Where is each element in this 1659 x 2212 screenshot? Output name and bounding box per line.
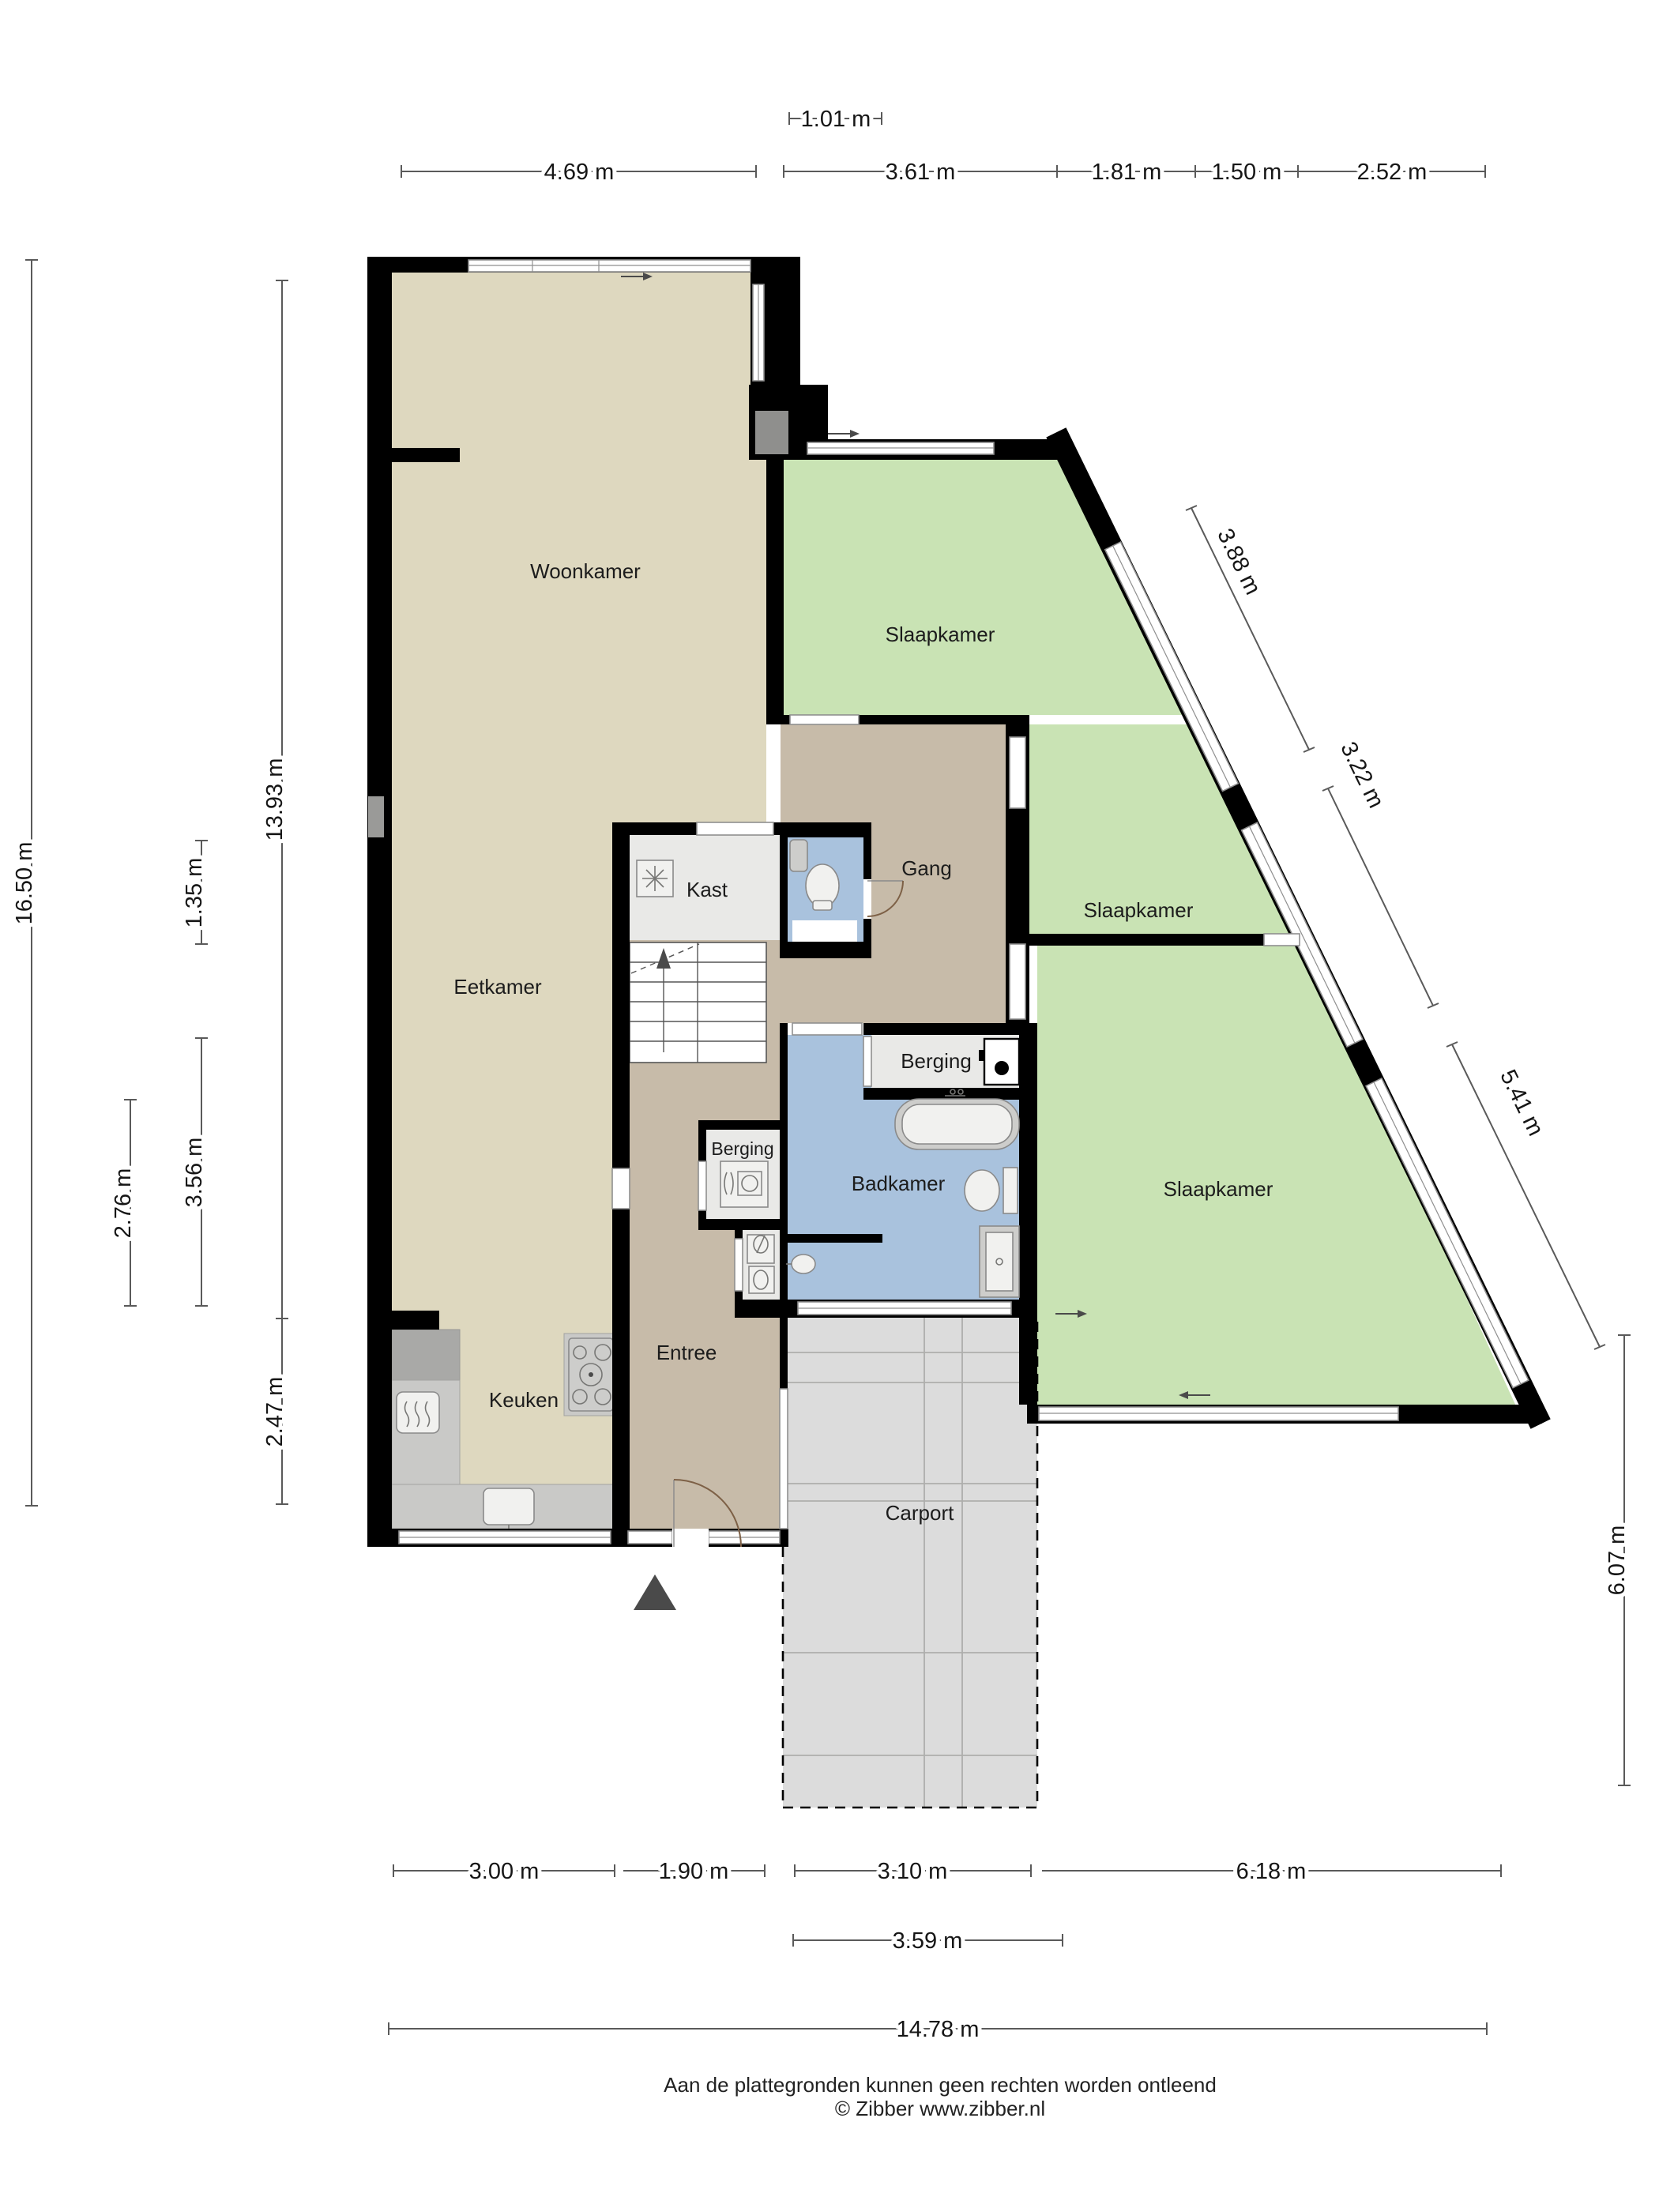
room-label-gang: Gang [901,856,952,880]
room-label-entree: Entree [656,1341,717,1364]
stairs [630,942,766,1063]
room-label-woonkamer: Woonkamer [530,559,641,583]
door-toilet [863,879,871,919]
dim-bottom-carport: 3.59 m [793,1928,1063,1954]
wall-woonkamer-slaapkamer [766,457,784,724]
door-meter-closet [735,1239,743,1291]
toilet2-icon [965,1168,1018,1213]
door-keuken [612,1168,630,1209]
floorplan-canvas: Woonkamer Eetkamer Keuken Entree Kast Ga… [0,0,1659,2212]
dim-bottom-total: 14.78 m [389,2017,1487,2042]
dim-top-row: 4.69 m 3.61 m 1.81 m 1.50 m 2.52 m [401,160,1485,185]
fridge-icon [392,1330,460,1380]
wall-toilet-bottom [788,942,871,958]
door-tussen-slaapkamers [1264,934,1300,946]
door-berging-gang [863,1036,871,1086]
wall-stub-woonkamer [392,448,460,462]
floor-slaapkamer-onder [1037,946,1517,1408]
shower-icon [980,1226,1019,1297]
svg-text:3.59 m: 3.59 m [893,1928,963,1954]
wall-berging-bottom [863,1088,1037,1100]
dim-bottom-row: 3.00 m 1.90 m 3.10 m 6.18 m [393,1859,1501,1884]
wall-stub-keuken [392,1311,439,1330]
svg-text:13.93 m: 13.93 m [262,758,288,841]
svg-text:1.35 m: 1.35 m [182,858,207,928]
oven-icon [397,1392,439,1433]
chimney-inset [755,411,788,454]
door-voordeur-opening [672,1529,709,1547]
svg-text:1.90 m: 1.90 m [659,1859,729,1884]
door-slaapkamer-onder [1010,944,1025,1019]
svg-text:3.56 m: 3.56 m [182,1138,207,1208]
room-label-slaapkamer-boven: Slaapkamer [886,623,995,646]
svg-text:5.41 m: 5.41 m [1495,1066,1548,1140]
toilet-sill [792,920,857,942]
dim-right: 6.07 m [1604,1335,1631,1785]
door-berging-entree [698,1161,706,1210]
boiler-icon [979,1039,1019,1085]
entrance-arrow-icon [634,1574,676,1610]
floor-carport [783,1318,1037,1808]
svg-text:6.07 m: 6.07 m [1604,1525,1630,1596]
room-label-eetkamer: Eetkamer [453,975,542,999]
svg-text:3.61 m: 3.61 m [886,160,956,185]
wall-badkamer-stub [788,1234,882,1243]
footer-copyright: © Zibber www.zibber.nl [835,2097,1045,2120]
room-label-keuken: Keuken [489,1388,559,1412]
room-label-berging-entree: Berging [711,1138,773,1159]
wall-kast-toilet [780,822,788,958]
window-entree-right [780,1389,788,1529]
svg-text:14.78 m: 14.78 m [897,2017,980,2042]
svg-text:3.00 m: 3.00 m [469,1859,540,1884]
svg-text:6.18 m: 6.18 m [1236,1859,1307,1884]
wall-berging2-top [698,1120,780,1130]
svg-text:2.47 m: 2.47 m [262,1377,288,1447]
svg-text:16.50 m: 16.50 m [12,842,37,925]
svg-text:2.52 m: 2.52 m [1357,160,1428,185]
wall-slaapkamer-midden-onder [1029,934,1300,946]
wall-badkamer-slaapkamer [1019,1023,1037,1405]
svg-text:3.22 m: 3.22 m [1335,738,1389,812]
svg-text:3.88 m: 3.88 m [1212,525,1266,599]
wall-left [367,257,392,1547]
dim-top-offset: 1.01 m [789,107,882,132]
room-label-kast: Kast [687,878,728,901]
room-label-carport: Carport [886,1501,954,1525]
wall-niche [368,796,384,837]
door-slaapkamer-midden [1010,737,1025,808]
svg-text:3.10 m: 3.10 m [878,1859,948,1884]
room-label-berging-gang: Berging [901,1049,972,1073]
room-label-slaapkamer-midden: Slaapkamer [1084,898,1194,922]
floorplan-page: Woonkamer Eetkamer Keuken Entree Kast Ga… [0,0,1659,2212]
svg-text:1.50 m: 1.50 m [1212,160,1282,185]
wall-berging-top [863,1023,1037,1035]
footer: Aan de plattegronden kunnen geen rechten… [664,2073,1217,2120]
svg-text:4.69 m: 4.69 m [544,160,615,185]
window-entree-bottom-left [628,1531,672,1544]
stove-icon [569,1338,613,1411]
svg-text:1.01 m: 1.01 m [801,107,871,132]
dim-left: 16.50 m 13.93 m 1.35 m 3.56 m 2.76 m 2.4… [12,260,288,1506]
washer-icon [720,1161,768,1207]
ventilation-icon [637,860,673,897]
door-badkamer-sliding [792,1023,862,1035]
door-kast-sliding [697,822,773,835]
footer-disclaimer: Aan de plattegronden kunnen geen rechten… [664,2073,1217,2097]
door-slaapkamer-boven [790,715,859,724]
svg-text:1.81 m: 1.81 m [1092,160,1162,185]
svg-text:2.76 m: 2.76 m [111,1168,136,1239]
room-label-badkamer: Badkamer [852,1172,946,1195]
room-label-slaapkamer-onder: Slaapkamer [1164,1177,1273,1201]
wall-toilet-top [788,822,871,837]
wall-entree-badkamer [780,1023,788,1311]
wall-berging2-bottom [698,1219,780,1230]
